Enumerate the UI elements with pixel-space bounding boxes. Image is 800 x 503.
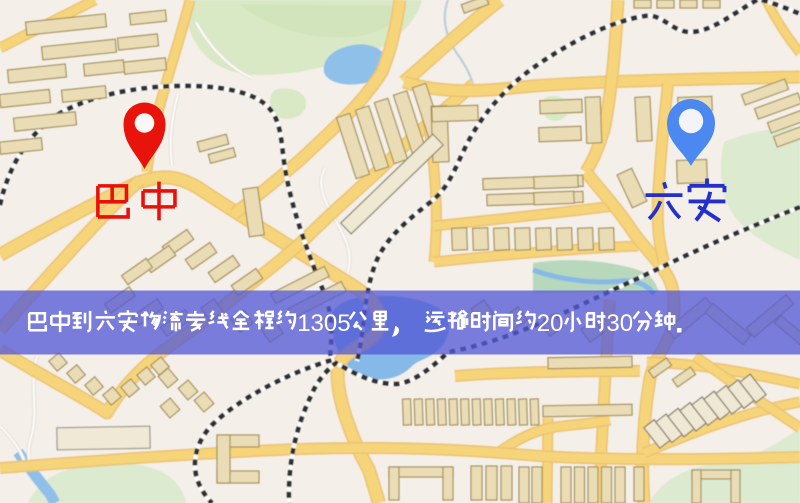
- svg-text:30: 30: [606, 310, 633, 337]
- svg-text:20: 20: [537, 310, 564, 337]
- svg-text:1305: 1305: [297, 310, 350, 337]
